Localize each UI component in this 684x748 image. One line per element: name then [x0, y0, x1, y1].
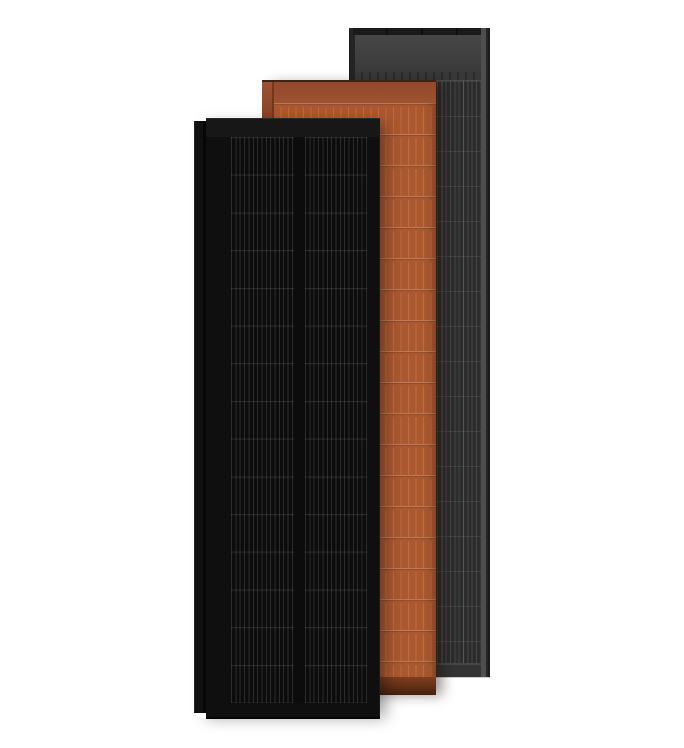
solar-panel-black-front — [194, 118, 380, 718]
gray-panel-top-cap — [353, 28, 489, 35]
black-panel-cell-grid — [231, 137, 367, 703]
black-panel-left-frame-rail — [194, 121, 206, 713]
product-render-canvas — [0, 0, 684, 748]
black-panel-cell-column-left — [231, 137, 294, 703]
terracotta-panel-header-band — [262, 82, 436, 104]
gray-panel-header-band — [355, 35, 488, 72]
black-panel-cell-column-right — [305, 137, 368, 703]
black-panel-top-band — [206, 119, 380, 137]
gray-panel-right-frame-rail — [481, 28, 490, 677]
